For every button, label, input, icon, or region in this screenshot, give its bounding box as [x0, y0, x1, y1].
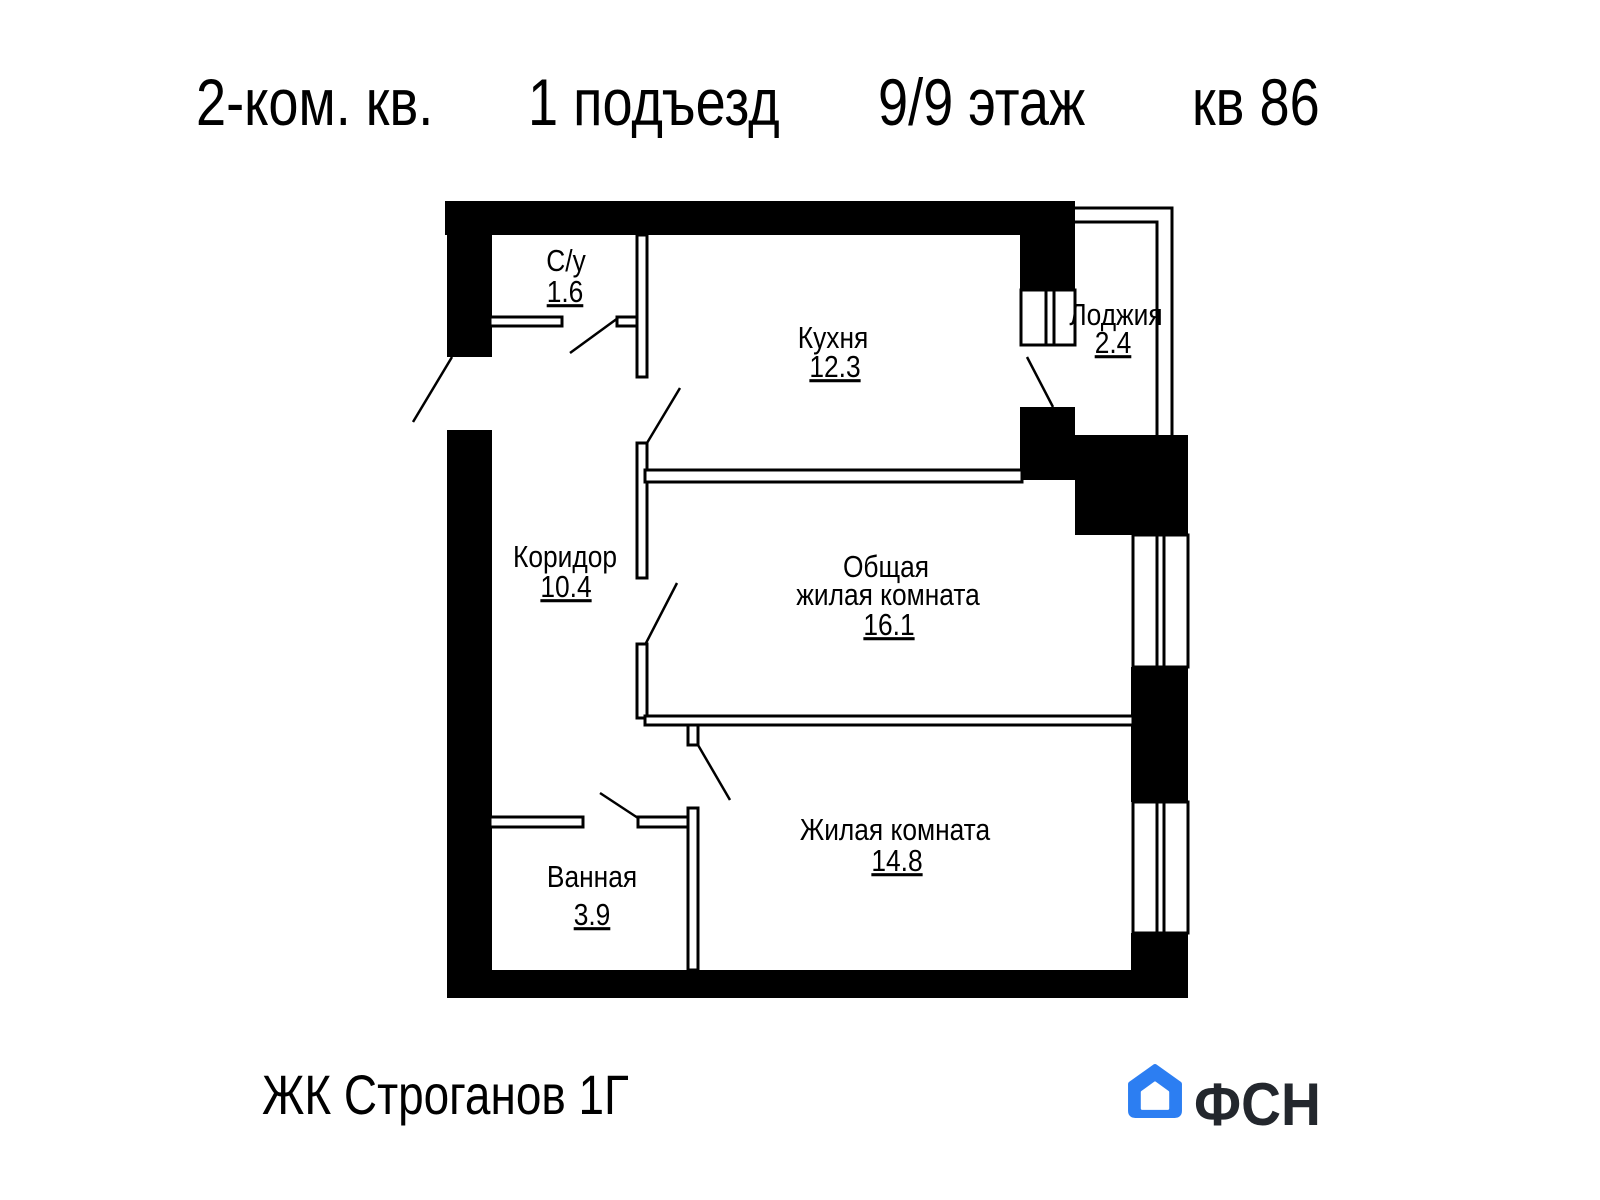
loggia-glazing-icon: [1021, 290, 1075, 345]
door-swing-living: [698, 745, 730, 800]
header-apartment-type-text: 2-ком. кв.: [196, 64, 433, 140]
room-area-bathroom: 3.9: [574, 898, 611, 932]
door-swing-loggia: [1027, 357, 1053, 407]
room-label-su: С/у: [546, 244, 586, 278]
door-swings: [413, 318, 1053, 818]
room-area-kitchen-text: 12.3: [809, 350, 860, 384]
header-apartment-type: 2-ком. кв.: [196, 64, 485, 140]
wall-kitchen-right-lower: [1020, 407, 1075, 480]
door-swing-bathroom: [600, 793, 638, 818]
wall-kitchen-bottom: [645, 470, 1022, 482]
room-area-living-common-text: 16.1: [863, 608, 914, 642]
window-living-icon: [1133, 802, 1188, 933]
wall-right-top: [1075, 435, 1188, 535]
wall-left-upper: [447, 201, 492, 357]
project-name: ЖК Строганов 1Г: [262, 1062, 709, 1127]
room-label-bathroom-text: Ванная: [547, 860, 637, 894]
header-entrance: 1 подъезд: [528, 64, 835, 140]
room-label-living: Жилая комната: [800, 813, 990, 847]
wall-corridor-living-common: [637, 644, 647, 718]
project-name-text: ЖК Строганов 1Г: [262, 1062, 629, 1127]
header-unit-number: кв 86: [1192, 64, 1348, 140]
wall-bathroom-top-left: [490, 817, 583, 827]
loggia-window-frame: [1021, 290, 1075, 345]
window-frame: [1133, 535, 1188, 667]
room-area-kitchen: 12.3: [809, 350, 860, 384]
wall-right-bottom: [1131, 933, 1188, 998]
wall-bathroom-right: [688, 808, 698, 970]
room-area-su-text: 1.6: [547, 275, 584, 309]
door-swing-su: [570, 318, 618, 353]
wall-bathroom-top-right: [638, 817, 688, 827]
window-frame: [1133, 802, 1188, 933]
room-area-living: 14.8: [871, 844, 922, 878]
room-area-living-text: 14.8: [871, 844, 922, 878]
room-area-su: 1.6: [547, 275, 584, 309]
room-label-bathroom: Ванная: [547, 860, 637, 894]
window-living-common-icon: [1133, 535, 1188, 667]
room-area-corridor-text: 10.4: [540, 570, 591, 604]
house-icon: [1126, 1060, 1184, 1122]
room-area-bathroom-text: 3.9: [574, 898, 611, 932]
wall-living-door-post: [688, 725, 698, 745]
floor-plan: С/у 1.6 Кухня 12.3 Лоджия 2.4 Коридор 10…: [380, 190, 1210, 1020]
wall-bottom: [447, 970, 1188, 998]
room-area-living-common: 16.1: [863, 608, 914, 642]
wall-right-middle: [1131, 667, 1188, 802]
wall-su-bottom: [490, 317, 562, 326]
room-label-su-text: С/у: [546, 244, 586, 278]
wall-kitchen-right-upper: [1020, 235, 1075, 290]
wall-corridor-kitchen-upper: [637, 235, 647, 377]
wall-top: [445, 201, 1075, 235]
door-swing-living-common: [645, 583, 677, 645]
header-floor: 9/9 этаж: [878, 64, 1131, 140]
wall-left-lower: [447, 430, 492, 998]
brand-logo-text: ФСН: [1194, 1070, 1321, 1139]
door-swing-entrance: [413, 357, 452, 422]
room-area-corridor: 10.4: [540, 570, 591, 604]
room-area-loggia: 2.4: [1095, 326, 1132, 360]
header-floor-text: 9/9 этаж: [878, 64, 1085, 140]
header-entrance-text: 1 подъезд: [528, 64, 780, 140]
wall-corridor-kitchen-lower: [637, 443, 647, 578]
door-swing-kitchen: [647, 388, 680, 443]
room-area-loggia-text: 2.4: [1095, 326, 1132, 360]
header-unit-number-text: кв 86: [1192, 64, 1320, 140]
room-label-living-text: Жилая комната: [800, 813, 990, 847]
wall-living-common-bottom: [645, 716, 1133, 725]
